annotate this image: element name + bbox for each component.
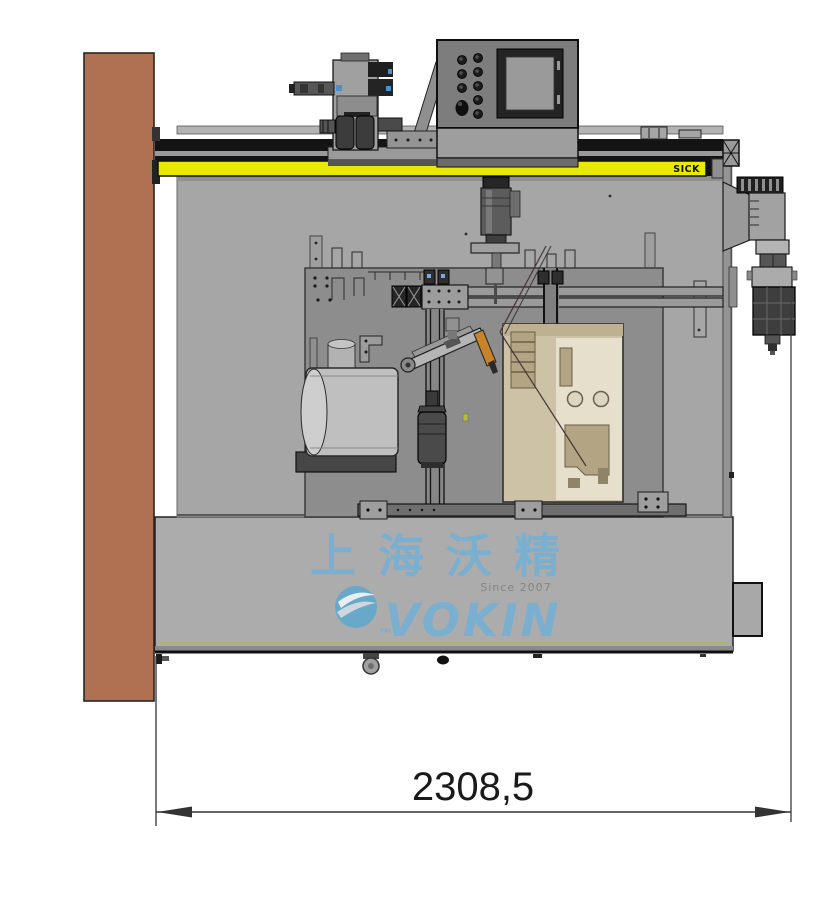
hmi-screen xyxy=(497,49,563,118)
base-side-box xyxy=(733,583,762,636)
small-foot-right xyxy=(700,654,706,657)
wall-column xyxy=(84,53,154,701)
left-post-strip xyxy=(310,236,322,268)
rail-tab xyxy=(641,127,667,139)
side-mark xyxy=(729,472,734,478)
window-hole xyxy=(568,392,583,407)
carriage-base-strip xyxy=(328,160,438,166)
carriage-top-cap xyxy=(341,53,369,61)
small-foot xyxy=(533,654,542,658)
center-foot xyxy=(437,656,449,665)
caster-wheel xyxy=(363,653,379,674)
spindle-tip xyxy=(765,335,780,344)
safety-bar-end xyxy=(712,159,723,178)
actuator-rod xyxy=(494,284,497,304)
watermark-brand-text: VOKIN xyxy=(385,594,562,647)
window-hole-2 xyxy=(594,392,609,407)
actuator-cap xyxy=(483,177,509,188)
spindle-bellows xyxy=(737,177,783,193)
actuator-side-block xyxy=(510,191,520,217)
spindle-tip-2 xyxy=(768,344,777,351)
carriage-rod xyxy=(289,82,342,95)
cross-rail-lower xyxy=(468,298,723,307)
machine-side-view-drawing: SICK xyxy=(0,0,833,907)
dimension-value: 2308,5 xyxy=(412,765,534,809)
wall-bracket-top xyxy=(152,127,160,141)
actuator-motor xyxy=(481,188,511,235)
dimension-arrow-right xyxy=(755,807,790,818)
inner-mechanism-plate xyxy=(296,246,723,519)
actuator-flange xyxy=(471,243,519,253)
right-spindle-assembly xyxy=(723,177,797,478)
sensor-marker xyxy=(463,414,468,421)
cross-rail-upper xyxy=(468,287,723,296)
watermark-chinese-text: 上海沃精 xyxy=(310,529,582,583)
small-bracket-foot xyxy=(448,331,457,339)
watermark-since-text: Since 2007 xyxy=(480,581,551,594)
left-foot-pad xyxy=(162,656,169,661)
cylinder-right xyxy=(356,116,374,149)
panel-lower-box xyxy=(437,128,578,158)
sick-label: SICK xyxy=(673,164,700,175)
actuator-coupler xyxy=(486,268,503,284)
clamp-blocks xyxy=(392,286,421,307)
panel-bottom-band xyxy=(437,158,578,167)
rail-end-cap xyxy=(723,140,739,166)
estop-button xyxy=(456,100,469,116)
dimension-arrow-left xyxy=(157,807,192,818)
spindle-flange xyxy=(752,267,792,287)
slider-plate xyxy=(422,285,468,309)
safety-bar-cap xyxy=(706,161,712,176)
spindle-tip-3 xyxy=(770,351,775,355)
left-foot xyxy=(156,654,162,664)
inspection-window xyxy=(503,324,623,502)
side-rail-tab xyxy=(729,267,737,307)
cad-drawing-page: SICK xyxy=(0,0,833,907)
cylinder-left xyxy=(336,116,354,149)
small-bracket xyxy=(446,318,459,331)
vokin-logo xyxy=(335,586,377,628)
hmi-control-panel xyxy=(437,40,578,167)
carriage-arm xyxy=(378,118,402,131)
spindle-motor xyxy=(753,287,795,335)
rail-tab-2 xyxy=(679,130,701,138)
wall-rect xyxy=(84,53,154,701)
actuator-stem xyxy=(492,253,501,268)
spindle-collar xyxy=(756,240,789,254)
